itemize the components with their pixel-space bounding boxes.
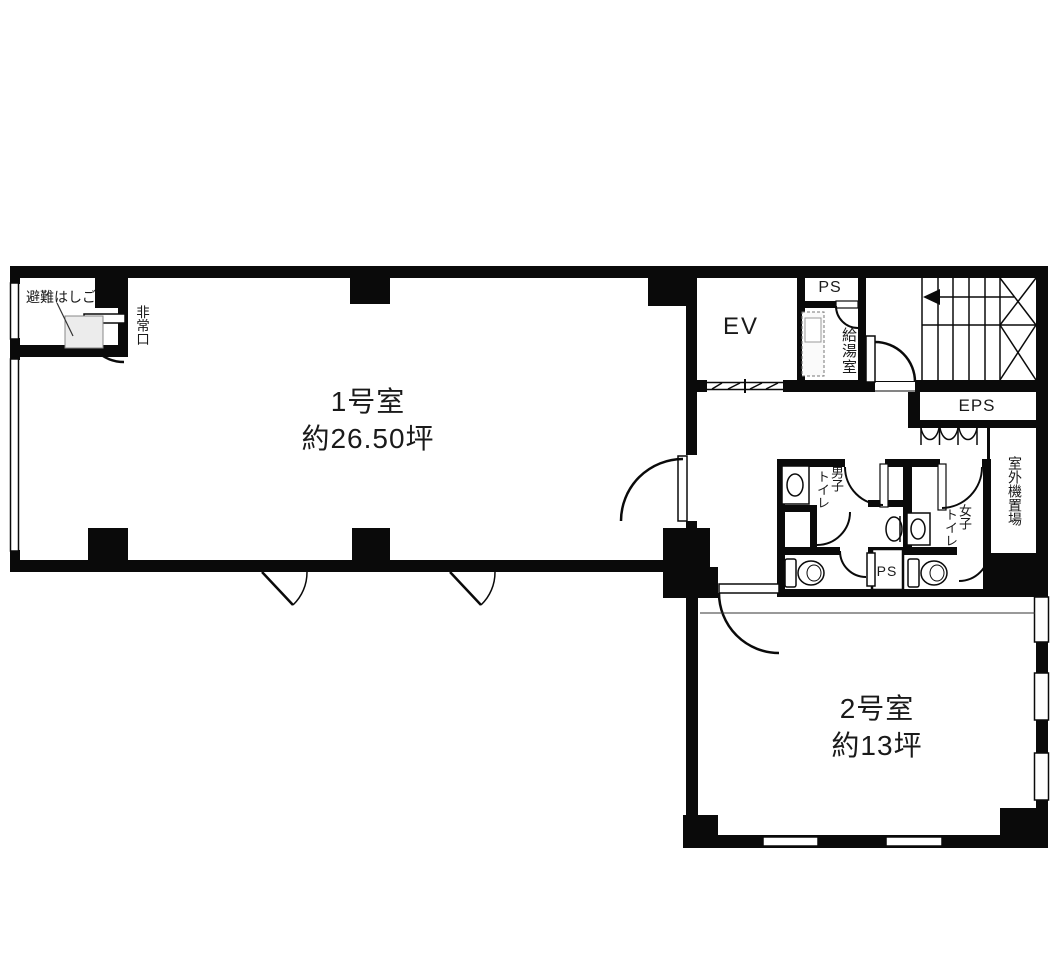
womens-sink-basin: [911, 519, 925, 539]
eps-bottom-wall: [908, 420, 1048, 428]
mens-toilet-tank: [785, 559, 796, 587]
toilet-right-wall: [983, 459, 991, 597]
toilet-top-wall-2: [885, 459, 940, 467]
room1-out-door1-leaf: [262, 572, 293, 605]
mens-stall-door-arc: [817, 512, 850, 545]
mens-entry-door-leaf: [880, 464, 888, 507]
stair-door-arc: [875, 342, 915, 382]
room2-bottom-wall: [683, 835, 1048, 848]
womens-entry-door-leaf: [938, 464, 946, 510]
room1-door-arc: [621, 459, 683, 521]
mens-toilet-label-line2: トイレ: [813, 470, 832, 509]
room1-name-label: 1号室: [331, 380, 406, 420]
window-right-1: [1035, 597, 1049, 642]
room2-area-label: 約13坪: [831, 724, 922, 764]
mens-entry-door-arc: [845, 467, 883, 505]
balcony-pillar: [95, 266, 128, 308]
pillar-top-2: [350, 266, 390, 304]
pillar-bottom-2: [352, 528, 390, 572]
womens-toilet-bowl-inner: [930, 565, 944, 581]
floor-plan-drawing: [0, 0, 1062, 976]
mens-wc-door-arc: [840, 551, 866, 577]
room2-name-label: 2号室: [840, 687, 915, 727]
junction-pillar-jog: [708, 567, 718, 598]
mens-toilet-bowl-inner: [807, 565, 821, 581]
mens-sink-wall-v: [810, 505, 817, 547]
band-wall-1: [686, 380, 707, 392]
ev-left-wall: [686, 266, 697, 392]
pipe-space-upper-label: PS: [818, 279, 841, 297]
room1-out-door2-leaf: [450, 572, 481, 605]
wall-left-stub-top: [10, 266, 20, 284]
womens-toilet-tank: [908, 559, 919, 587]
pillar-top-3: [648, 266, 686, 306]
window-bottom-1: [763, 837, 818, 846]
toilet-mid-wall-3: [903, 547, 957, 555]
emergency-exit-label: 非常口: [131, 305, 151, 346]
elevator-label: EV: [723, 313, 759, 341]
window-bottom-2: [886, 837, 942, 846]
room1-out-door2-arc: [481, 572, 495, 605]
room1-area-label: 約26.50坪: [301, 417, 434, 457]
kitchenette-right-wall: [858, 266, 866, 392]
window-left-balcony: [11, 283, 19, 339]
room2-left-wall: [686, 598, 698, 848]
outdoor-unit-bottom-mass: [987, 553, 1048, 597]
evacuation-ladder-label: 避難はしご: [26, 287, 96, 307]
mens-sink-basin: [787, 474, 803, 496]
womens-toilet-label-line2: トイレ: [941, 508, 960, 547]
kitchenette-door-leaf: [836, 301, 858, 308]
floor-plan: 1号室 約26.50坪 2号室 約13坪 EV PS 給湯室 EPS 室外機置場…: [0, 0, 1062, 976]
band-wall-3: [915, 380, 1048, 392]
band-wall-2: [783, 380, 875, 392]
room2-door-leaf: [719, 584, 779, 593]
corridor-left-stub: [686, 521, 697, 530]
junction-pillar: [663, 528, 710, 598]
wall-top: [10, 266, 1048, 278]
kitchenette-sink: [805, 318, 821, 342]
room1-door-leaf: [678, 456, 687, 521]
outdoor-unit-label: 室外機置場: [1005, 456, 1025, 526]
eps-label: EPS: [958, 396, 995, 416]
stair-door-leaf: [866, 336, 875, 382]
window-left-room1: [11, 359, 19, 551]
room2-door-arc: [719, 593, 779, 653]
pillar-bottom-1: [88, 528, 128, 572]
elevator-door: [707, 379, 783, 393]
corridor-left-wall: [686, 392, 697, 455]
ps-bottom-wall: [805, 301, 836, 308]
stair-arrow-head: [923, 289, 940, 305]
window-right-2: [1035, 673, 1049, 720]
left-windows: [11, 283, 19, 551]
toilet-mid-wall-1: [777, 547, 840, 555]
window-right-3: [1035, 753, 1049, 800]
room1-out-door1-arc: [293, 572, 307, 605]
pipe-space-lower-label: PS: [877, 563, 898, 579]
toilet-ps-door-panel: [867, 553, 875, 586]
eps-cabinet-doors: [921, 428, 977, 445]
kitchenette-door-arc: [836, 306, 858, 328]
womens-entry-door-arc: [942, 467, 982, 508]
kitchenette-label: 給湯室: [838, 327, 859, 375]
